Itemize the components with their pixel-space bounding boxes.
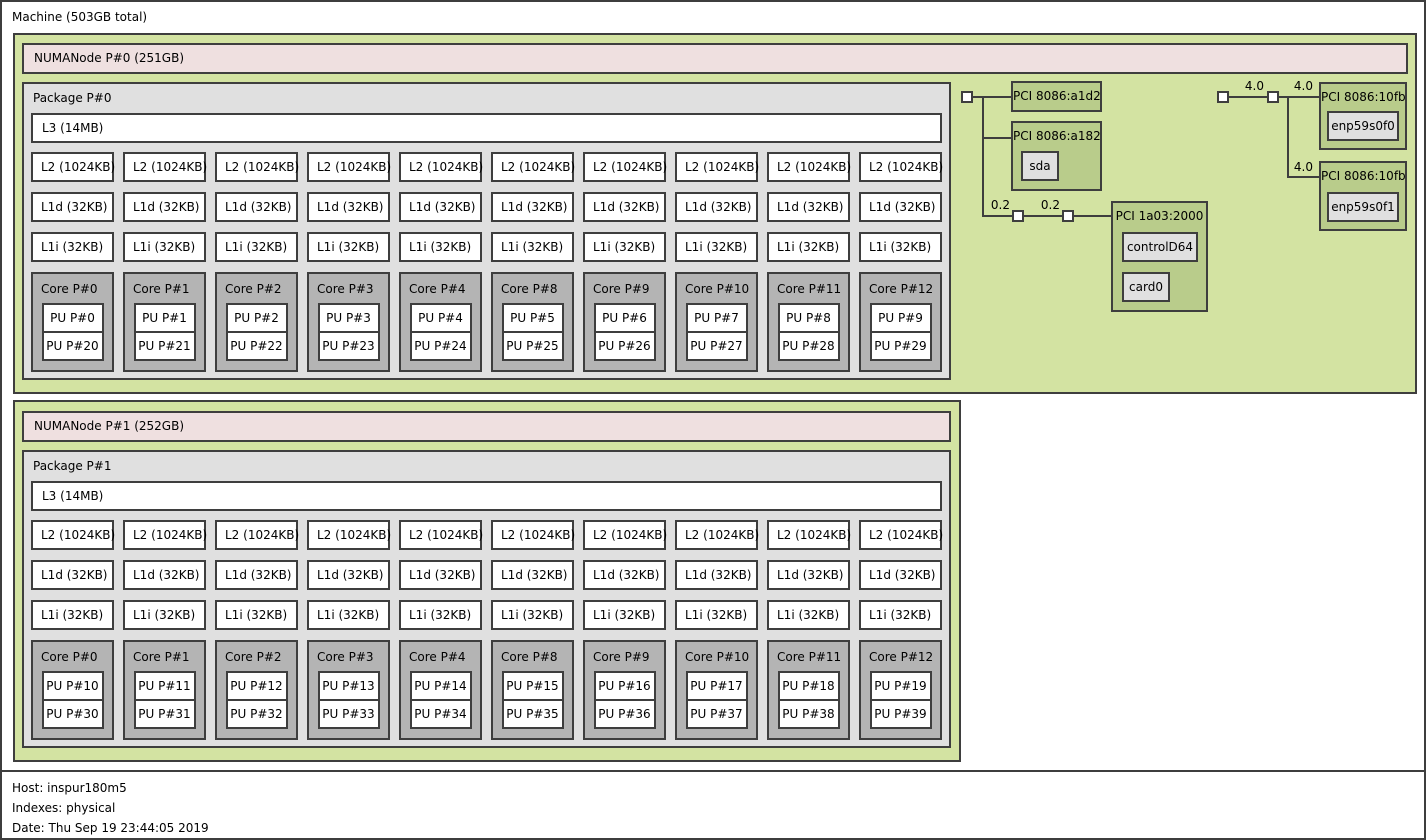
pu-stack: PU P#15 PU P#35 bbox=[502, 671, 564, 729]
cpu-column: L2 (1024KB) L1d (32KB) L1i (32KB) Core P… bbox=[215, 520, 298, 740]
pci-device-label: PCI 8086:a1d2 bbox=[1013, 83, 1100, 110]
l1d-cache-box: L1d (32KB) bbox=[859, 192, 942, 222]
pci-link-line bbox=[983, 137, 1011, 139]
l1i-cache-box: L1i (32KB) bbox=[123, 232, 206, 262]
pu-box: PU P#9 bbox=[870, 303, 932, 333]
l1i-cache-box: L1i (32KB) bbox=[675, 232, 758, 262]
pu-stack: PU P#14 PU P#34 bbox=[410, 671, 472, 729]
os-device-enp59s0f0: enp59s0f0 bbox=[1327, 111, 1399, 141]
l2-cache-box: L2 (1024KB) bbox=[399, 520, 482, 550]
pci-device-8086-10fb-0: PCI 8086:10fb enp59s0f0 bbox=[1319, 82, 1407, 150]
pci-device-label: PCI 8086:10fb bbox=[1321, 163, 1405, 189]
core-columns: L2 (1024KB) L1d (32KB) L1i (32KB) Core P… bbox=[31, 520, 942, 740]
l2-cache-box: L2 (1024KB) bbox=[675, 520, 758, 550]
pu-stack: PU P#7 PU P#27 bbox=[686, 303, 748, 361]
l2-cache-box: L2 (1024KB) bbox=[767, 520, 850, 550]
numanode-0-group: NUMANode P#0 (251GB) Package P#0 L3 (14M… bbox=[13, 33, 1417, 394]
pu-stack: PU P#16 PU P#36 bbox=[594, 671, 656, 729]
core-label: Core P#11 bbox=[777, 650, 841, 664]
l2-cache-box: L2 (1024KB) bbox=[859, 152, 942, 182]
core-box: Core P#9 PU P#16 PU P#36 bbox=[583, 640, 666, 740]
pu-box: PU P#25 bbox=[502, 331, 564, 361]
pci-device-8086-10fb-1: PCI 8086:10fb enp59s0f1 bbox=[1319, 161, 1407, 231]
l1d-cache-box: L1d (32KB) bbox=[123, 560, 206, 590]
pu-stack: PU P#10 PU P#30 bbox=[42, 671, 104, 729]
pci-device-8086-a182: PCI 8086:a182 sda bbox=[1011, 121, 1102, 191]
cpu-column: L2 (1024KB) L1d (32KB) L1i (32KB) Core P… bbox=[399, 152, 482, 372]
cpu-column: L2 (1024KB) L1d (32KB) L1i (32KB) Core P… bbox=[31, 520, 114, 740]
hostbridge-square bbox=[961, 91, 973, 103]
core-box: Core P#3 PU P#13 PU P#33 bbox=[307, 640, 390, 740]
l1d-cache-box: L1d (32KB) bbox=[31, 560, 114, 590]
cpu-column: L2 (1024KB) L1d (32KB) L1i (32KB) Core P… bbox=[123, 520, 206, 740]
l1d-cache-box: L1d (32KB) bbox=[215, 560, 298, 590]
pu-box: PU P#20 bbox=[42, 331, 104, 361]
pu-box: PU P#24 bbox=[410, 331, 472, 361]
pu-box: PU P#36 bbox=[594, 699, 656, 729]
pu-stack: PU P#2 PU P#22 bbox=[226, 303, 288, 361]
pu-stack: PU P#12 PU P#32 bbox=[226, 671, 288, 729]
pu-stack: PU P#18 PU P#38 bbox=[778, 671, 840, 729]
core-label: Core P#11 bbox=[777, 282, 841, 296]
core-box: Core P#9 PU P#6 PU P#26 bbox=[583, 272, 666, 372]
pu-box: PU P#19 bbox=[870, 671, 932, 701]
bridge-square bbox=[1267, 91, 1279, 103]
pu-box: PU P#6 bbox=[594, 303, 656, 333]
l2-cache-box: L2 (1024KB) bbox=[859, 520, 942, 550]
l1d-cache-box: L1d (32KB) bbox=[491, 560, 574, 590]
pci-device-8086-a1d2: PCI 8086:a1d2 bbox=[1011, 81, 1102, 112]
l3-cache-box: L3 (14MB) bbox=[31, 113, 942, 143]
pci-link-line bbox=[1229, 96, 1267, 98]
core-box: Core P#11 PU P#8 PU P#28 bbox=[767, 272, 850, 372]
l1d-cache-box: L1d (32KB) bbox=[491, 192, 574, 222]
l2-cache-box: L2 (1024KB) bbox=[307, 152, 390, 182]
pu-box: PU P#18 bbox=[778, 671, 840, 701]
core-label: Core P#2 bbox=[225, 650, 282, 664]
l1i-cache-box: L1i (32KB) bbox=[583, 600, 666, 630]
pu-stack: PU P#19 PU P#39 bbox=[870, 671, 932, 729]
cpu-column: L2 (1024KB) L1d (32KB) L1i (32KB) Core P… bbox=[307, 152, 390, 372]
pci-link-line bbox=[1279, 96, 1319, 98]
pci-link-line bbox=[973, 96, 1011, 98]
cpu-column: L2 (1024KB) L1d (32KB) L1i (32KB) Core P… bbox=[399, 520, 482, 740]
core-label: Core P#12 bbox=[869, 282, 933, 296]
l1d-cache-box: L1d (32KB) bbox=[307, 560, 390, 590]
l2-cache-box: L2 (1024KB) bbox=[307, 520, 390, 550]
pu-stack: PU P#5 PU P#25 bbox=[502, 303, 564, 361]
l1d-cache-box: L1d (32KB) bbox=[307, 192, 390, 222]
pci-device-label: PCI 8086:a182 bbox=[1013, 123, 1100, 149]
pu-box: PU P#2 bbox=[226, 303, 288, 333]
l1d-cache-box: L1d (32KB) bbox=[215, 192, 298, 222]
l2-cache-box: L2 (1024KB) bbox=[491, 152, 574, 182]
l2-cache-box: L2 (1024KB) bbox=[583, 520, 666, 550]
l2-cache-box: L2 (1024KB) bbox=[399, 152, 482, 182]
core-box: Core P#8 PU P#5 PU P#25 bbox=[491, 272, 574, 372]
l2-cache-box: L2 (1024KB) bbox=[31, 520, 114, 550]
l1i-cache-box: L1i (32KB) bbox=[123, 600, 206, 630]
numanode-1-label: NUMANode P#1 (252GB) bbox=[22, 411, 951, 442]
l2-cache-box: L2 (1024KB) bbox=[31, 152, 114, 182]
package-1-box: Package P#1 L3 (14MB) L2 (1024KB) L1d (3… bbox=[22, 450, 951, 748]
cpu-column: L2 (1024KB) L1d (32KB) L1i (32KB) Core P… bbox=[31, 152, 114, 372]
numanode-0-label: NUMANode P#0 (251GB) bbox=[22, 43, 1408, 74]
bridge-square bbox=[1012, 210, 1024, 222]
pu-box: PU P#8 bbox=[778, 303, 840, 333]
l1d-cache-box: L1d (32KB) bbox=[675, 192, 758, 222]
pu-box: PU P#4 bbox=[410, 303, 472, 333]
pu-stack: PU P#1 PU P#21 bbox=[134, 303, 196, 361]
pu-box: PU P#28 bbox=[778, 331, 840, 361]
l1i-cache-box: L1i (32KB) bbox=[767, 232, 850, 262]
link-speed-label: 4.0 bbox=[1234, 80, 1264, 93]
core-columns: L2 (1024KB) L1d (32KB) L1i (32KB) Core P… bbox=[31, 152, 942, 372]
l2-cache-box: L2 (1024KB) bbox=[215, 152, 298, 182]
core-label: Core P#0 bbox=[41, 282, 98, 296]
hostbridge-square bbox=[1217, 91, 1229, 103]
pci-link-line bbox=[983, 215, 1111, 217]
pci-device-label: PCI 8086:10fb bbox=[1321, 84, 1405, 110]
cpu-column: L2 (1024KB) L1d (32KB) L1i (32KB) Core P… bbox=[491, 152, 574, 372]
machine-title: Machine (503GB total) bbox=[12, 10, 147, 24]
l1i-cache-box: L1i (32KB) bbox=[307, 600, 390, 630]
pu-box: PU P#30 bbox=[42, 699, 104, 729]
pu-box: PU P#33 bbox=[318, 699, 380, 729]
l2-cache-box: L2 (1024KB) bbox=[583, 152, 666, 182]
l1d-cache-box: L1d (32KB) bbox=[399, 192, 482, 222]
cpu-column: L2 (1024KB) L1d (32KB) L1i (32KB) Core P… bbox=[215, 152, 298, 372]
l1d-cache-box: L1d (32KB) bbox=[859, 560, 942, 590]
l1i-cache-box: L1i (32KB) bbox=[31, 232, 114, 262]
pu-box: PU P#29 bbox=[870, 331, 932, 361]
l1d-cache-box: L1d (32KB) bbox=[583, 192, 666, 222]
core-label: Core P#8 bbox=[501, 650, 558, 664]
cpu-column: L2 (1024KB) L1d (32KB) L1i (32KB) Core P… bbox=[859, 520, 942, 740]
bridge-square bbox=[1062, 210, 1074, 222]
l2-cache-box: L2 (1024KB) bbox=[675, 152, 758, 182]
l1i-cache-box: L1i (32KB) bbox=[491, 600, 574, 630]
pu-box: PU P#1 bbox=[134, 303, 196, 333]
l1i-cache-box: L1i (32KB) bbox=[215, 232, 298, 262]
l1i-cache-box: L1i (32KB) bbox=[767, 600, 850, 630]
pci-device-label: PCI 1a03:2000 bbox=[1113, 203, 1206, 229]
cpu-column: L2 (1024KB) L1d (32KB) L1i (32KB) Core P… bbox=[583, 520, 666, 740]
pu-box: PU P#3 bbox=[318, 303, 380, 333]
core-box: Core P#10 PU P#17 PU P#37 bbox=[675, 640, 758, 740]
core-box: Core P#4 PU P#14 PU P#34 bbox=[399, 640, 482, 740]
cpu-column: L2 (1024KB) L1d (32KB) L1i (32KB) Core P… bbox=[123, 152, 206, 372]
legend-date: Date: Thu Sep 19 23:44:05 2019 bbox=[12, 821, 209, 835]
l1i-cache-box: L1i (32KB) bbox=[675, 600, 758, 630]
core-label: Core P#2 bbox=[225, 282, 282, 296]
l2-cache-box: L2 (1024KB) bbox=[123, 520, 206, 550]
core-label: Core P#10 bbox=[685, 650, 749, 664]
l1d-cache-box: L1d (32KB) bbox=[767, 560, 850, 590]
core-label: Core P#8 bbox=[501, 282, 558, 296]
l1i-cache-box: L1i (32KB) bbox=[399, 600, 482, 630]
pu-box: PU P#39 bbox=[870, 699, 932, 729]
pu-box: PU P#21 bbox=[134, 331, 196, 361]
machine-bottom-border bbox=[2, 770, 1424, 772]
pu-box: PU P#22 bbox=[226, 331, 288, 361]
l1d-cache-box: L1d (32KB) bbox=[31, 192, 114, 222]
pu-box: PU P#7 bbox=[686, 303, 748, 333]
pu-box: PU P#31 bbox=[134, 699, 196, 729]
pu-stack: PU P#11 PU P#31 bbox=[134, 671, 196, 729]
pu-box: PU P#38 bbox=[778, 699, 840, 729]
l2-cache-box: L2 (1024KB) bbox=[767, 152, 850, 182]
pu-box: PU P#35 bbox=[502, 699, 564, 729]
pu-box: PU P#34 bbox=[410, 699, 472, 729]
core-box: Core P#2 PU P#12 PU P#32 bbox=[215, 640, 298, 740]
l1d-cache-box: L1d (32KB) bbox=[583, 560, 666, 590]
pu-box: PU P#32 bbox=[226, 699, 288, 729]
core-box: Core P#4 PU P#4 PU P#24 bbox=[399, 272, 482, 372]
l1i-cache-box: L1i (32KB) bbox=[859, 600, 942, 630]
cpu-column: L2 (1024KB) L1d (32KB) L1i (32KB) Core P… bbox=[491, 520, 574, 740]
core-label: Core P#10 bbox=[685, 282, 749, 296]
pu-stack: PU P#13 PU P#33 bbox=[318, 671, 380, 729]
core-label: Core P#3 bbox=[317, 282, 374, 296]
l2-cache-box: L2 (1024KB) bbox=[215, 520, 298, 550]
pci-link-line bbox=[1287, 176, 1319, 178]
core-label: Core P#4 bbox=[409, 282, 466, 296]
cpu-column: L2 (1024KB) L1d (32KB) L1i (32KB) Core P… bbox=[859, 152, 942, 372]
core-box: Core P#3 PU P#3 PU P#23 bbox=[307, 272, 390, 372]
l1i-cache-box: L1i (32KB) bbox=[859, 232, 942, 262]
l1i-cache-box: L1i (32KB) bbox=[31, 600, 114, 630]
legend-indexes: Indexes: physical bbox=[12, 801, 115, 815]
package-0-title: Package P#0 bbox=[33, 91, 942, 105]
core-box: Core P#10 PU P#7 PU P#27 bbox=[675, 272, 758, 372]
pu-stack: PU P#4 PU P#24 bbox=[410, 303, 472, 361]
pu-box: PU P#12 bbox=[226, 671, 288, 701]
l1i-cache-box: L1i (32KB) bbox=[491, 232, 574, 262]
pu-box: PU P#14 bbox=[410, 671, 472, 701]
pu-box: PU P#16 bbox=[594, 671, 656, 701]
core-box: Core P#12 PU P#9 PU P#29 bbox=[859, 272, 942, 372]
l1i-cache-box: L1i (32KB) bbox=[399, 232, 482, 262]
link-speed-label: 0.2 bbox=[980, 199, 1010, 212]
core-label: Core P#1 bbox=[133, 282, 190, 296]
os-device-card0: card0 bbox=[1122, 272, 1170, 302]
package-0-box: Package P#0 L3 (14MB) L2 (1024KB) L1d (3… bbox=[22, 82, 951, 380]
pu-box: PU P#37 bbox=[686, 699, 748, 729]
link-speed-label: 4.0 bbox=[1283, 161, 1313, 174]
core-box: Core P#8 PU P#15 PU P#35 bbox=[491, 640, 574, 740]
pu-box: PU P#5 bbox=[502, 303, 564, 333]
core-box: Core P#0 PU P#0 PU P#20 bbox=[31, 272, 114, 372]
pu-box: PU P#0 bbox=[42, 303, 104, 333]
cpu-column: L2 (1024KB) L1d (32KB) L1i (32KB) Core P… bbox=[583, 152, 666, 372]
pu-stack: PU P#17 PU P#37 bbox=[686, 671, 748, 729]
pu-box: PU P#15 bbox=[502, 671, 564, 701]
pu-box: PU P#17 bbox=[686, 671, 748, 701]
l2-cache-box: L2 (1024KB) bbox=[123, 152, 206, 182]
core-label: Core P#1 bbox=[133, 650, 190, 664]
pu-box: PU P#27 bbox=[686, 331, 748, 361]
core-box: Core P#1 PU P#1 PU P#21 bbox=[123, 272, 206, 372]
cpu-column: L2 (1024KB) L1d (32KB) L1i (32KB) Core P… bbox=[675, 152, 758, 372]
core-box: Core P#12 PU P#19 PU P#39 bbox=[859, 640, 942, 740]
core-label: Core P#0 bbox=[41, 650, 98, 664]
core-box: Core P#2 PU P#2 PU P#22 bbox=[215, 272, 298, 372]
l1d-cache-box: L1d (32KB) bbox=[399, 560, 482, 590]
l1d-cache-box: L1d (32KB) bbox=[123, 192, 206, 222]
l1d-cache-box: L1d (32KB) bbox=[767, 192, 850, 222]
l1i-cache-box: L1i (32KB) bbox=[307, 232, 390, 262]
cpu-column: L2 (1024KB) L1d (32KB) L1i (32KB) Core P… bbox=[307, 520, 390, 740]
cpu-column: L2 (1024KB) L1d (32KB) L1i (32KB) Core P… bbox=[767, 152, 850, 372]
cpu-column: L2 (1024KB) L1d (32KB) L1i (32KB) Core P… bbox=[675, 520, 758, 740]
pu-box: PU P#10 bbox=[42, 671, 104, 701]
pu-box: PU P#11 bbox=[134, 671, 196, 701]
core-label: Core P#12 bbox=[869, 650, 933, 664]
machine-box: Machine (503GB total) NUMANode P#0 (251G… bbox=[0, 0, 1426, 840]
pu-box: PU P#26 bbox=[594, 331, 656, 361]
pu-stack: PU P#6 PU P#26 bbox=[594, 303, 656, 361]
pu-stack: PU P#3 PU P#23 bbox=[318, 303, 380, 361]
core-label: Core P#4 bbox=[409, 650, 466, 664]
pu-box: PU P#13 bbox=[318, 671, 380, 701]
pu-stack: PU P#8 PU P#28 bbox=[778, 303, 840, 361]
l1i-cache-box: L1i (32KB) bbox=[583, 232, 666, 262]
core-label: Core P#9 bbox=[593, 282, 650, 296]
legend-host: Host: inspur180m5 bbox=[12, 781, 127, 795]
core-label: Core P#9 bbox=[593, 650, 650, 664]
os-device-sda: sda bbox=[1021, 151, 1059, 181]
core-label: Core P#3 bbox=[317, 650, 374, 664]
l2-cache-box: L2 (1024KB) bbox=[491, 520, 574, 550]
l3-cache-box: L3 (14MB) bbox=[31, 481, 942, 511]
os-device-controlD64: controlD64 bbox=[1122, 232, 1198, 262]
core-box: Core P#11 PU P#18 PU P#38 bbox=[767, 640, 850, 740]
pu-stack: PU P#0 PU P#20 bbox=[42, 303, 104, 361]
core-box: Core P#1 PU P#11 PU P#31 bbox=[123, 640, 206, 740]
pu-stack: PU P#9 PU P#29 bbox=[870, 303, 932, 361]
l1i-cache-box: L1i (32KB) bbox=[215, 600, 298, 630]
numanode-1-group: NUMANode P#1 (252GB) Package P#1 L3 (14M… bbox=[13, 400, 961, 762]
os-device-enp59s0f1: enp59s0f1 bbox=[1327, 192, 1399, 222]
core-box: Core P#0 PU P#10 PU P#30 bbox=[31, 640, 114, 740]
l1d-cache-box: L1d (32KB) bbox=[675, 560, 758, 590]
pci-device-1a03-2000: PCI 1a03:2000 controlD64 card0 bbox=[1111, 201, 1208, 312]
pu-box: PU P#23 bbox=[318, 331, 380, 361]
cpu-column: L2 (1024KB) L1d (32KB) L1i (32KB) Core P… bbox=[767, 520, 850, 740]
package-1-title: Package P#1 bbox=[33, 459, 942, 473]
link-speed-label: 0.2 bbox=[1030, 199, 1060, 212]
link-speed-label: 4.0 bbox=[1283, 80, 1313, 93]
